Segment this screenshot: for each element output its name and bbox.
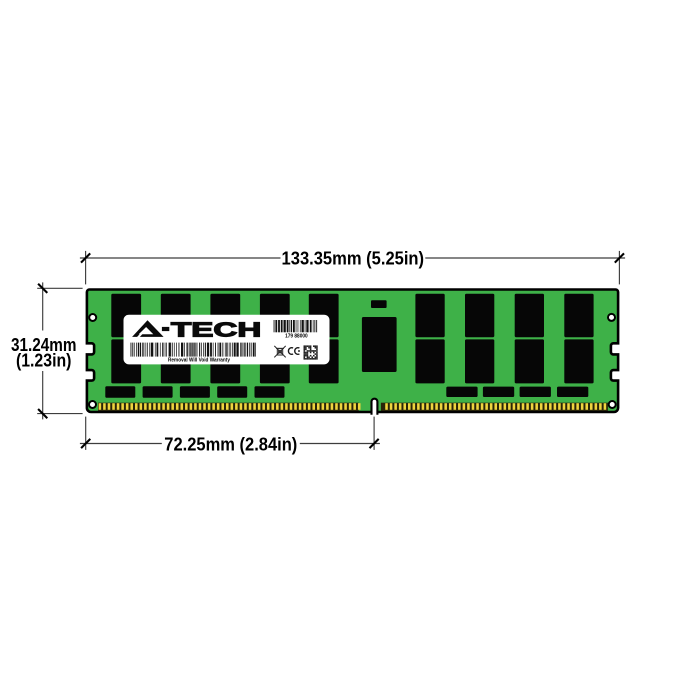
svg-text:179 88000: 179 88000	[285, 333, 308, 339]
svg-text:Removal Will Void Warranty: Removal Will Void Warranty	[168, 358, 231, 364]
svg-text:72.25mm (2.84in): 72.25mm (2.84in)	[164, 433, 297, 454]
svg-text:(1.23in): (1.23in)	[16, 350, 72, 371]
svg-text:TECH: TECH	[171, 318, 261, 341]
svg-text:133.35mm (5.25in): 133.35mm (5.25in)	[282, 248, 425, 269]
